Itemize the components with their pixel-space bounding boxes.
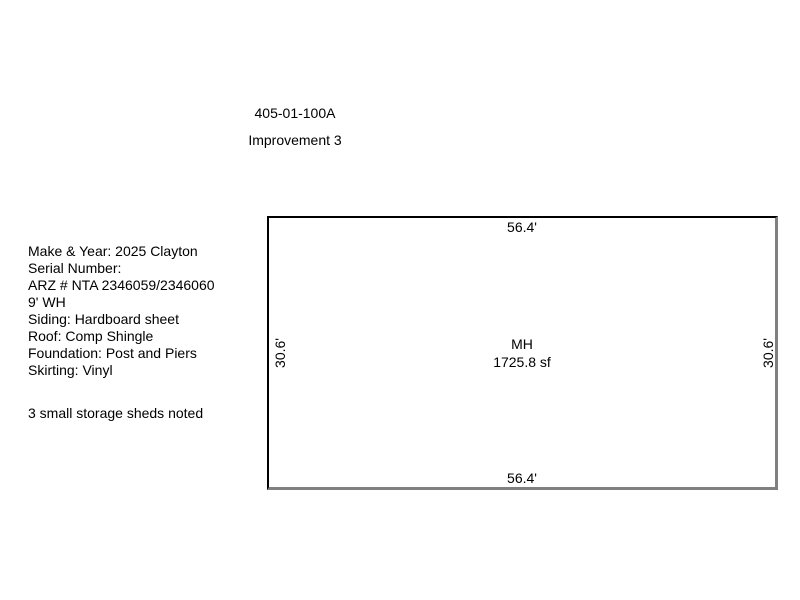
detail-line-skirting: Skirting: Vinyl — [28, 362, 258, 379]
improvement-label: Improvement 3 — [195, 132, 395, 148]
detail-line-wh: 9' WH — [28, 294, 258, 311]
improvement-sketch-page: 405-01-100A Improvement 3 Make & Year: 2… — [0, 0, 800, 600]
dimension-bottom: 56.4' — [269, 470, 775, 486]
storage-sheds-note: 3 small storage sheds noted — [28, 405, 203, 422]
detail-line-foundation: Foundation: Post and Piers — [28, 345, 258, 362]
detail-line-serial-number: Serial Number: — [28, 260, 258, 277]
parcel-id: 405-01-100A — [195, 105, 395, 121]
structure-area-label: 1725.8 sf — [269, 353, 775, 371]
structure-type-label: MH — [269, 335, 775, 353]
structure-info: MH 1725.8 sf — [269, 335, 775, 371]
header: 405-01-100A Improvement 3 — [195, 105, 395, 148]
detail-line-arz-number: ARZ # NTA 2346059/2346060 — [28, 277, 258, 294]
dimension-top: 56.4' — [269, 219, 775, 235]
improvement-details: Make & Year: 2025 Clayton Serial Number:… — [28, 243, 258, 379]
building-outline: 56.4' 56.4' 30.6' 30.6' MH 1725.8 sf — [267, 216, 778, 490]
detail-line-roof: Roof: Comp Shingle — [28, 328, 258, 345]
detail-line-make-year: Make & Year: 2025 Clayton — [28, 243, 258, 260]
detail-line-siding: Siding: Hardboard sheet — [28, 311, 258, 328]
